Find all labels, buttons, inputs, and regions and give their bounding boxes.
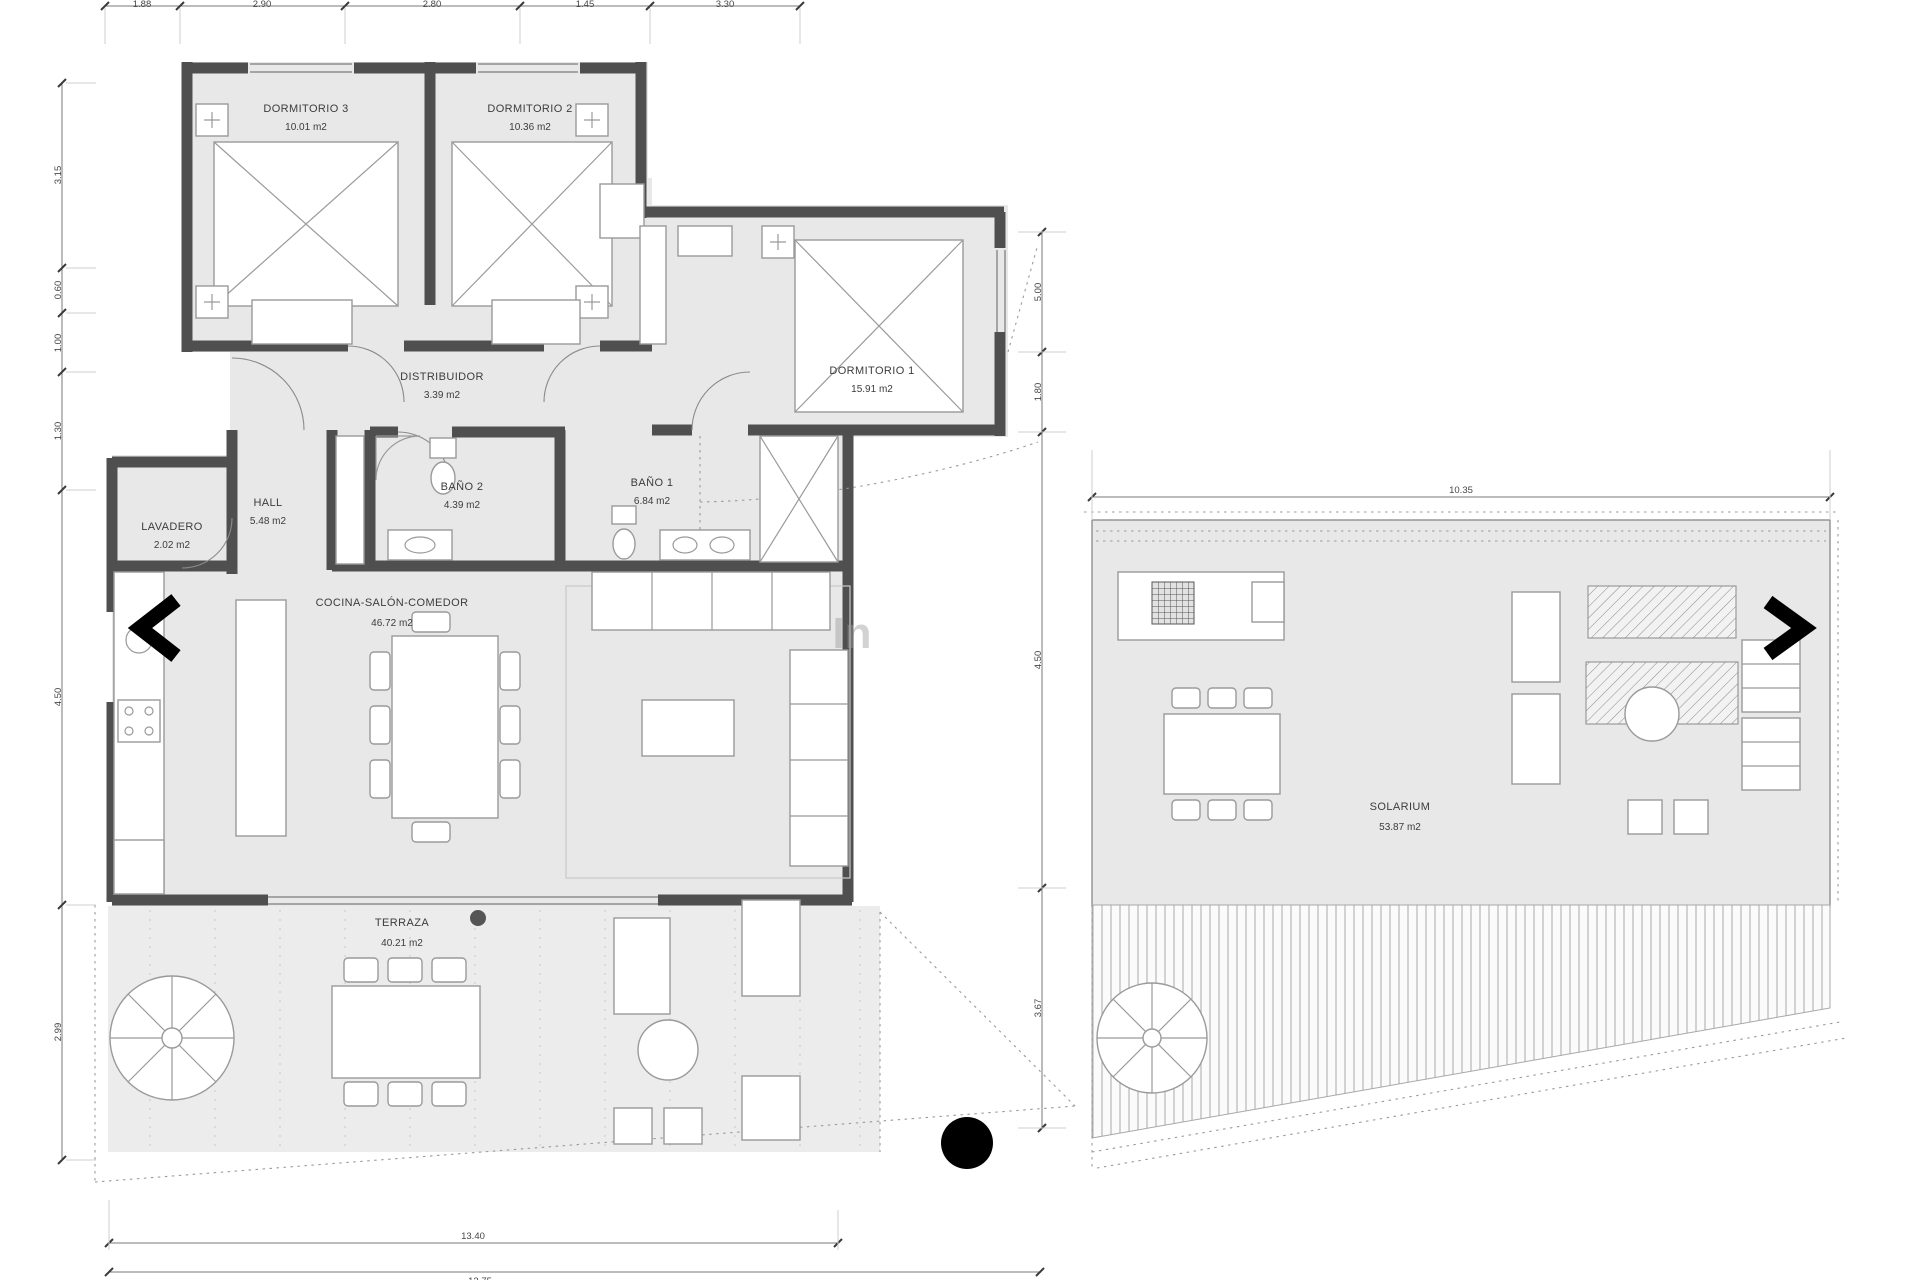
watermark: In [832, 609, 871, 658]
solarium-plan: SOLARIUM 53.87 m2 10.35 [1084, 450, 1846, 1168]
floorplan-page: DORMITORIO 3 10.01 m2 DORMITORIO 2 10.36… [0, 0, 1920, 1280]
room-label-solarium: SOLARIUM [1370, 801, 1431, 813]
coffee-table [642, 700, 734, 756]
svg-text:1.80: 1.80 [1033, 383, 1044, 402]
roof-kitchen-counter [1118, 572, 1284, 640]
drain-icon [470, 910, 486, 926]
svg-text:2.99: 2.99 [53, 1023, 64, 1042]
room-area-dormitorio-2: 10.36 m2 [509, 122, 551, 133]
room-area-lavadero: 2.02 m2 [154, 540, 191, 551]
room-area-solarium: 53.87 m2 [1379, 822, 1421, 833]
svg-text:4.50: 4.50 [1033, 651, 1044, 670]
dimension-roof-top: 10.35 [1088, 450, 1834, 520]
room-label-dormitorio-3: DORMITORIO 3 [263, 103, 348, 115]
roof-spiral-stair [1097, 983, 1207, 1093]
room-label-lavadero: LAVADERO [141, 521, 203, 533]
sun-lounger [614, 918, 670, 1014]
main-floor-plan: DORMITORIO 3 10.01 m2 DORMITORIO 2 10.36… [53, 0, 1075, 1280]
svg-text:3.67: 3.67 [1033, 999, 1044, 1018]
pergola-hatch [1588, 586, 1736, 638]
svg-text:3.15: 3.15 [53, 166, 64, 185]
round-table [638, 1020, 698, 1080]
wardrobe [492, 300, 580, 344]
room-area-dormitorio-1: 15.91 m2 [851, 384, 893, 395]
room-label-cocina-salon: COCINA-SALÓN-COMEDOR [316, 596, 469, 609]
room-area-bano-2: 4.39 m2 [444, 500, 481, 511]
room-label-bano-1: BAÑO 1 [631, 476, 674, 489]
svg-text:5.00: 5.00 [1033, 283, 1044, 302]
svg-text:0.60: 0.60 [53, 281, 64, 300]
room-label-distribuidor: DISTRIBUIDOR [400, 371, 484, 383]
room-area-cocina-salon: 46.72 m2 [371, 618, 413, 629]
floorplan-canvas: DORMITORIO 3 10.01 m2 DORMITORIO 2 10.36… [0, 0, 1920, 1280]
svg-text:2.80: 2.80 [423, 0, 442, 10]
room-label-dormitorio-2: DORMITORIO 2 [487, 103, 572, 115]
survey-point-icon [941, 1117, 993, 1169]
sun-lounger [1512, 694, 1560, 784]
svg-text:1.30: 1.30 [53, 422, 64, 441]
svg-text:3.30: 3.30 [716, 0, 735, 10]
room-area-distribuidor: 3.39 m2 [424, 390, 461, 401]
room-area-bano-1: 6.84 m2 [634, 496, 671, 507]
room-label-dormitorio-1: DORMITORIO 1 [829, 365, 914, 377]
dimension-left: 3.15 0.60 1.00 1.30 4.50 2.99 [53, 79, 96, 1164]
dimension-bottom: 13.40 13.75 [105, 1200, 1044, 1280]
shaft [336, 436, 364, 564]
svg-text:1.00: 1.00 [53, 334, 64, 353]
dimension-middle: 5.00 1.80 4.50 3.67 [1018, 228, 1066, 1132]
roof-dining-set [1164, 688, 1280, 820]
wardrobe [252, 300, 352, 344]
sun-lounger [742, 900, 800, 996]
svg-text:1.88: 1.88 [133, 0, 152, 10]
outdoor-table [332, 986, 480, 1078]
svg-text:2.90: 2.90 [253, 0, 272, 10]
room-label-hall: HALL [253, 497, 282, 509]
svg-text:10.35: 10.35 [1449, 485, 1473, 496]
svg-text:13.75: 13.75 [468, 1276, 492, 1280]
svg-text:13.40: 13.40 [461, 1231, 485, 1242]
room-label-bano-2: BAÑO 2 [441, 480, 484, 493]
dimension-top: 1.88 2.90 2.80 1.45 3.30 [101, 0, 804, 44]
bbq-grill [1152, 582, 1194, 624]
sun-lounger [1512, 592, 1560, 682]
room-area-hall: 5.48 m2 [250, 516, 287, 527]
dining-set [370, 612, 520, 842]
room-area-terraza: 40.21 m2 [381, 938, 423, 949]
round-table [1625, 687, 1679, 741]
svg-text:1.45: 1.45 [576, 0, 595, 10]
room-area-dormitorio-3: 10.01 m2 [285, 122, 327, 133]
room-label-terraza: TERRAZA [375, 917, 429, 929]
svg-text:4.50: 4.50 [53, 688, 64, 707]
kitchen-island [236, 600, 286, 836]
